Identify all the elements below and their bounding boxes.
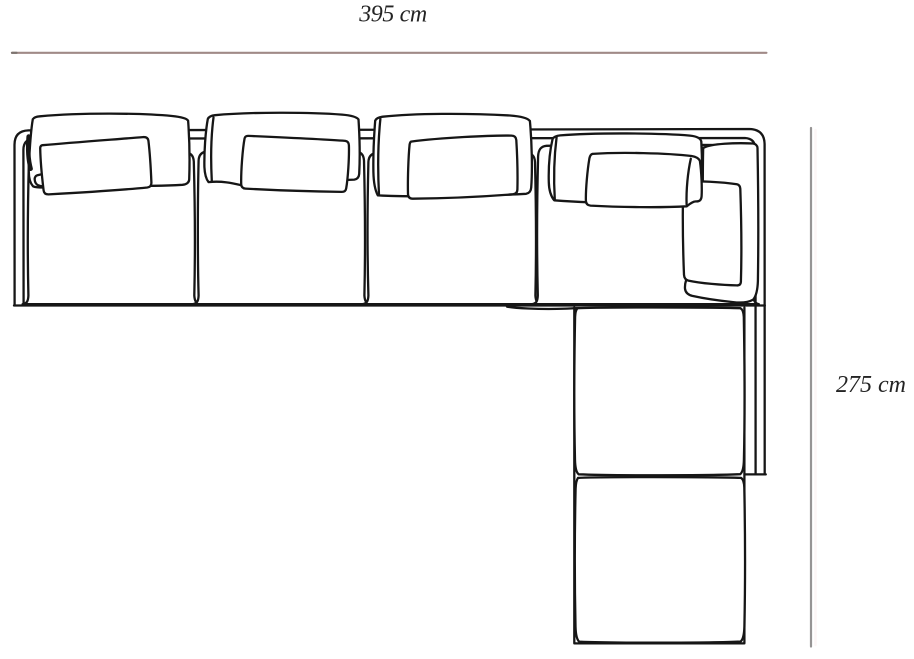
svg-text:275 cm: 275 cm: [836, 372, 906, 398]
svg-text:395 cm: 395 cm: [358, 2, 427, 28]
